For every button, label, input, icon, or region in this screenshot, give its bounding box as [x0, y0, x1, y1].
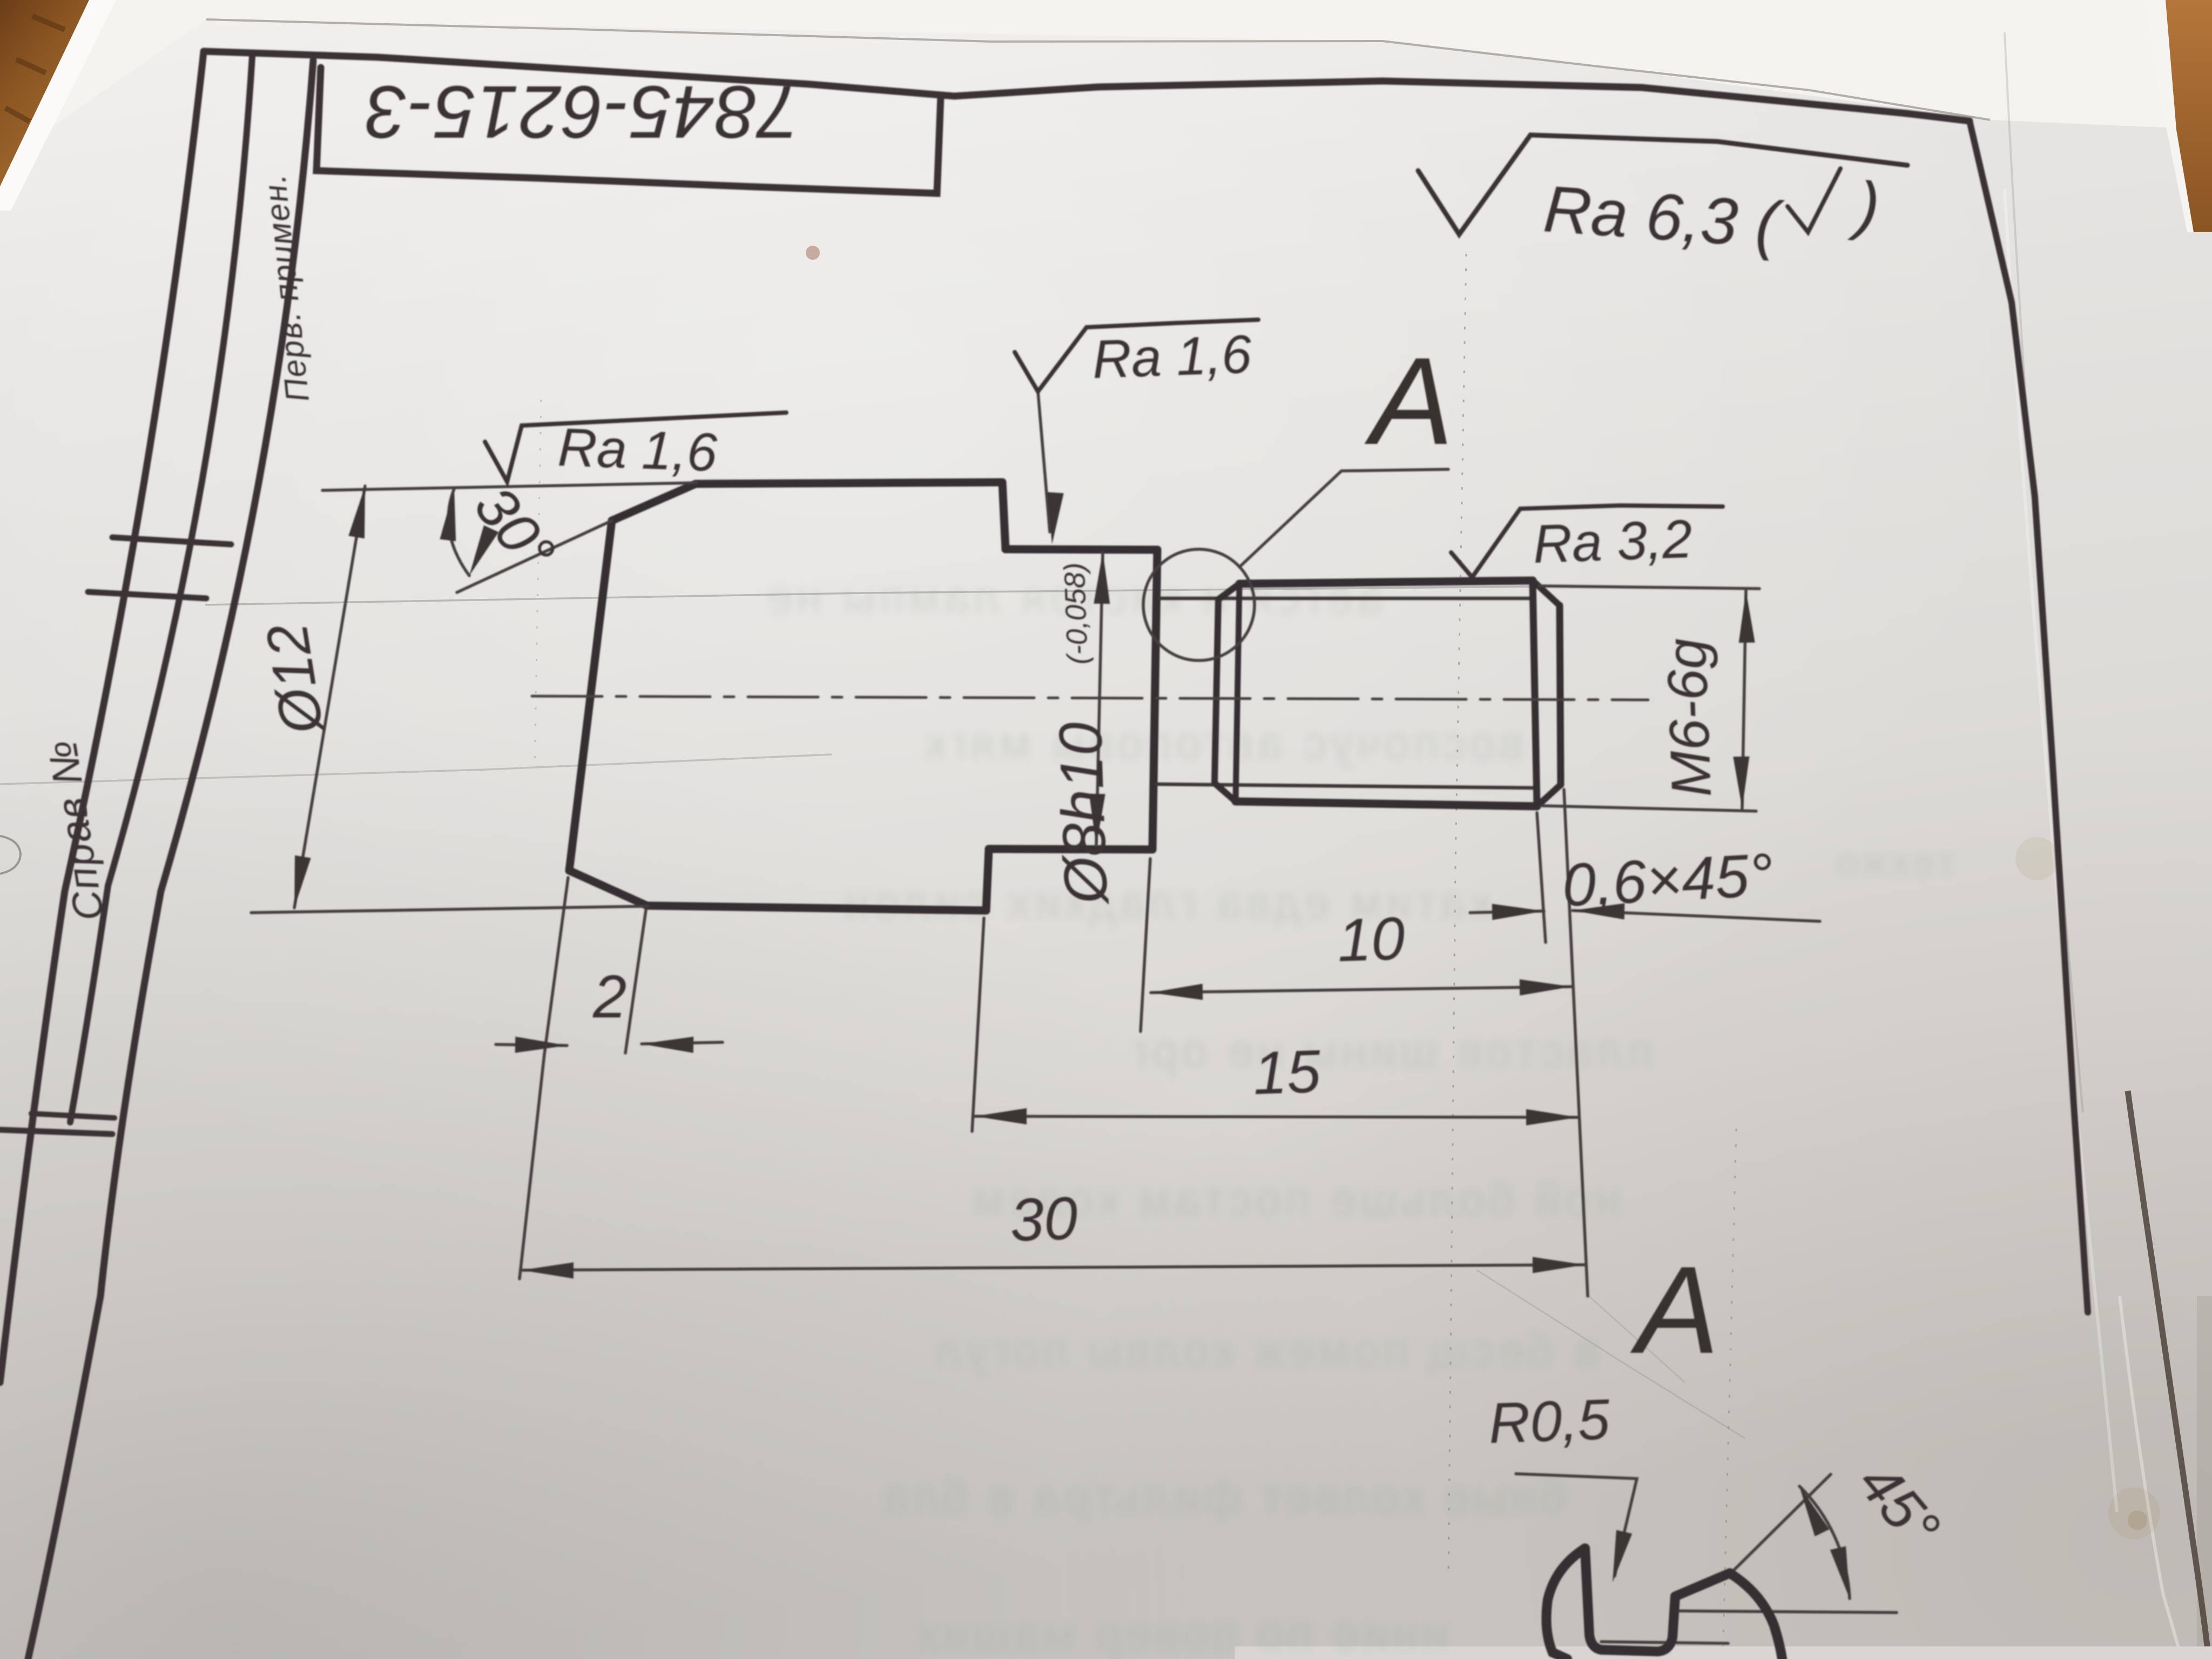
svg-text:Ø8h10: Ø8h10 [1046, 721, 1120, 907]
svg-text:10: 10 [1336, 905, 1406, 974]
svg-text:текжо: текжо [1832, 841, 1955, 883]
svg-text:30: 30 [1009, 1184, 1078, 1254]
svg-text:A: A [1630, 1240, 1719, 1379]
svg-text:R0,5: R0,5 [1488, 1387, 1611, 1455]
svg-text:бные колвет фильтра в бла: бные колвет фильтра в бла [880, 1471, 1566, 1522]
svg-text:A: A [1364, 332, 1453, 470]
svg-text:(-0,058): (-0,058) [1058, 562, 1094, 665]
svg-text:Ra 3,2: Ra 3,2 [1532, 509, 1693, 575]
svg-text:пластов шины не орг: пластов шины не орг [1128, 1026, 1653, 1076]
svg-text:Ra 1,6: Ra 1,6 [1091, 324, 1253, 390]
svg-text:воспочус автоповы мягк: воспочус автоповы мягк [921, 718, 1523, 768]
svg-text:Ra 1,6: Ra 1,6 [557, 417, 718, 483]
svg-text:15: 15 [1252, 1037, 1322, 1107]
svg-text:7845-6215-3: 7845-6215-3 [365, 70, 800, 153]
svg-text:2: 2 [592, 963, 626, 1030]
svg-text:0,6×45°: 0,6×45° [1561, 841, 1775, 919]
svg-text:нние по повер маших: нние по повер маших [912, 1609, 1447, 1659]
svg-text:в бесщ помеж колвы погул: в бесщ помеж колвы погул [932, 1325, 1599, 1376]
svg-text:M6-6g: M6-6g [1655, 637, 1723, 799]
